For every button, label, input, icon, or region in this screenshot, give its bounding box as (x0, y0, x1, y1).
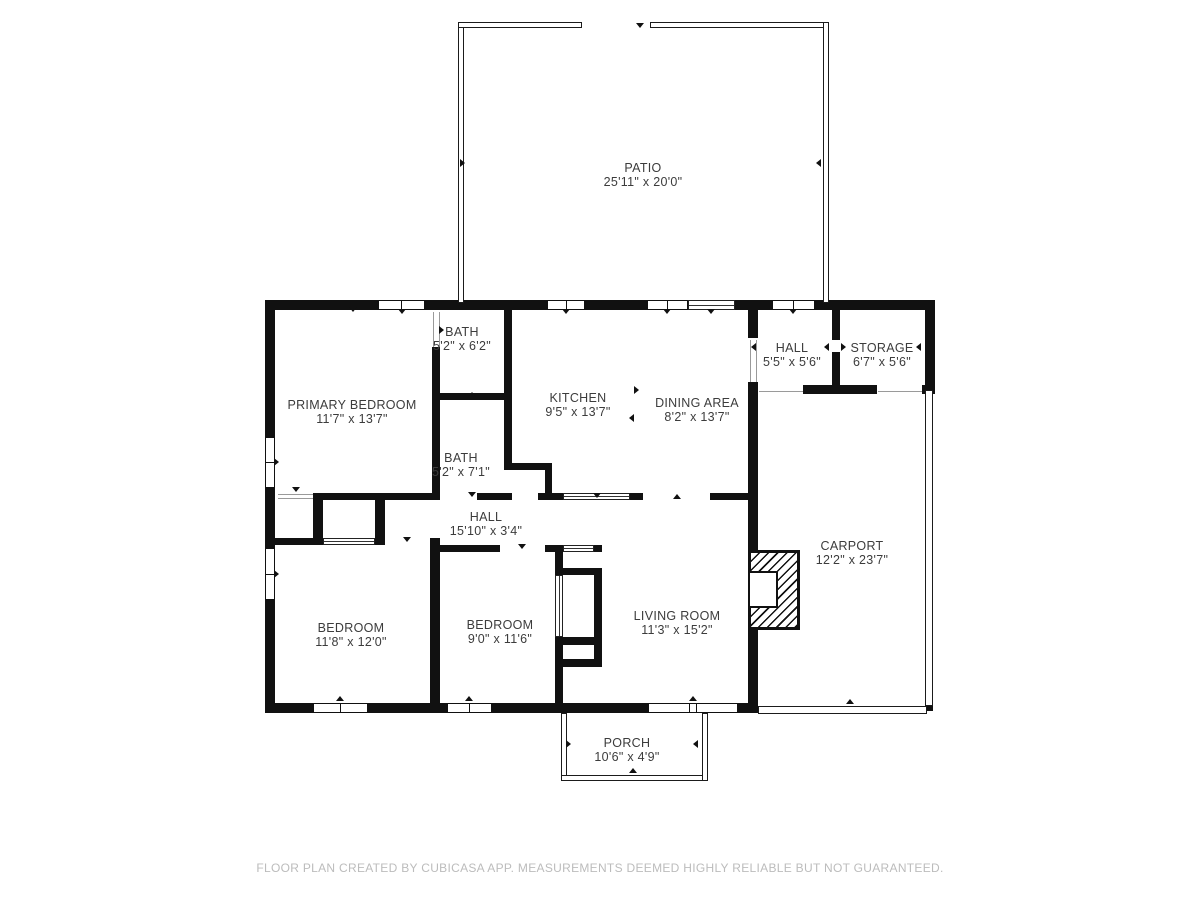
wall-segment (630, 493, 643, 500)
direction-tick (292, 487, 300, 492)
wall-segment (504, 310, 512, 463)
direction-tick (636, 23, 644, 28)
direction-tick (824, 343, 829, 351)
direction-tick (518, 544, 526, 549)
room-dimensions: 5'2" x 6'2" (433, 339, 491, 353)
wall-segment (425, 300, 547, 310)
wall-segment (368, 703, 447, 713)
wall-segment (538, 493, 563, 500)
room-name: BATH (445, 325, 479, 339)
room-label-carport: CARPORT12'2" x 23'7" (816, 539, 888, 567)
room-label-primary-bedroom: PRIMARY BEDROOM11'7" x 13'7" (287, 398, 416, 426)
wall-segment (555, 667, 563, 703)
direction-tick (403, 537, 411, 542)
direction-tick (693, 740, 698, 748)
thin-wall-segment (650, 22, 829, 28)
thin-wall-segment (561, 775, 708, 781)
window-mullion (266, 574, 274, 575)
room-name: PRIMARY BEDROOM (287, 398, 416, 412)
direction-tick (634, 386, 639, 394)
room-name: HALL (470, 510, 502, 524)
sliding-door-rail (559, 576, 560, 636)
wall-segment (265, 300, 275, 437)
room-dimensions: 6'7" x 5'6" (851, 355, 914, 369)
room-name: DINING AREA (655, 396, 739, 410)
wall-segment (594, 575, 602, 637)
room-name: KITCHEN (550, 391, 607, 405)
wall-segment (430, 545, 500, 552)
wall-segment (555, 659, 602, 667)
room-label-bath-lower: BATH5'2" x 7'1" (432, 451, 490, 479)
direction-tick (274, 458, 279, 466)
direction-tick (846, 699, 854, 704)
thin-wall-segment (702, 713, 708, 781)
room-dimensions: 11'7" x 13'7" (287, 412, 416, 426)
room-name: BEDROOM (318, 621, 385, 635)
wall-segment (265, 600, 275, 713)
room-name: BEDROOM (467, 618, 534, 632)
thin-wall-segment (458, 22, 582, 28)
opening-threshold (278, 494, 313, 495)
room-label-dining-area: DINING AREA8'2" x 13'7" (655, 396, 739, 424)
wall-segment (832, 310, 840, 340)
footer-disclaimer: FLOOR PLAN CREATED BY CUBICASA APP. MEAS… (256, 861, 943, 875)
direction-tick (562, 309, 570, 314)
room-dimensions: 9'5" x 13'7" (545, 405, 610, 419)
wall-segment (748, 382, 758, 552)
room-label-patio: PATIO25'11" x 20'0" (604, 161, 683, 189)
direction-tick (593, 493, 601, 498)
wall-segment (313, 493, 432, 500)
sliding-door (563, 545, 594, 552)
thin-wall-segment (925, 390, 933, 706)
room-dimensions: 11'8" x 12'0" (315, 635, 387, 649)
direction-tick (629, 768, 637, 773)
room-label-bedroom-middle: BEDROOM9'0" x 11'6" (467, 618, 534, 646)
direction-tick (841, 343, 846, 351)
room-name: STORAGE (851, 341, 914, 355)
wall-segment (803, 385, 877, 394)
direction-tick (673, 494, 681, 499)
sliding-door (555, 575, 563, 637)
direction-tick (707, 309, 715, 314)
room-name: CARPORT (821, 539, 884, 553)
direction-tick (689, 696, 697, 701)
room-dimensions: 9'0" x 11'6" (467, 632, 534, 646)
direction-tick (816, 159, 821, 167)
wall-segment (313, 500, 323, 545)
thin-wall-segment (823, 22, 829, 303)
room-dimensions: 10'6" x 4'9" (594, 750, 659, 764)
wall-segment (555, 568, 602, 575)
room-dimensions: 5'5" x 5'6" (763, 355, 821, 369)
floor-plan: FLOOR PLAN CREATED BY CUBICASA APP. MEAS… (0, 0, 1200, 900)
room-dimensions: 15'10" x 3'4" (450, 524, 522, 538)
window-mullion (689, 704, 690, 712)
wall-segment (545, 545, 563, 552)
window (447, 703, 492, 713)
direction-tick (663, 309, 671, 314)
wall-segment (735, 300, 772, 310)
opening-threshold (878, 391, 922, 392)
wall-segment (925, 300, 935, 390)
sliding-door (323, 538, 375, 545)
wall-segment (815, 300, 935, 310)
room-label-storage: STORAGE6'7" x 5'6" (851, 341, 914, 369)
window (313, 703, 368, 713)
sliding-door-rail (564, 548, 593, 549)
room-name: PATIO (624, 161, 661, 175)
direction-tick (398, 309, 406, 314)
wall-segment (555, 645, 563, 659)
direction-tick (460, 159, 465, 167)
sliding-door-rail (689, 305, 734, 306)
wall-segment (585, 300, 647, 310)
room-dimensions: 11'3" x 15'2" (634, 623, 721, 637)
direction-tick (274, 570, 279, 578)
room-name: BATH (444, 451, 478, 465)
window-mullion (696, 704, 697, 712)
room-dimensions: 8'2" x 13'7" (655, 410, 739, 424)
direction-tick (468, 392, 476, 397)
room-label-porch: PORCH10'6" x 4'9" (594, 736, 659, 764)
wall-segment (265, 300, 380, 310)
room-label-hall-entry: HALL5'5" x 5'6" (763, 341, 821, 369)
direction-tick (789, 309, 797, 314)
window (648, 703, 738, 713)
direction-tick (566, 740, 571, 748)
room-label-living-room: LIVING ROOM11'3" x 15'2" (634, 609, 721, 637)
wall-segment (594, 545, 602, 552)
direction-tick (336, 696, 344, 701)
window-mullion (266, 462, 274, 463)
wall-segment (265, 538, 313, 545)
opening-threshold (756, 340, 757, 382)
direction-tick (749, 399, 754, 407)
direction-tick (629, 414, 634, 422)
wall-segment (748, 628, 758, 703)
wall-segment (477, 493, 512, 500)
room-label-kitchen: KITCHEN9'5" x 13'7" (545, 391, 610, 419)
thin-wall-segment (758, 706, 927, 714)
room-name: HALL (776, 341, 808, 355)
wall-segment (375, 538, 385, 545)
opening-threshold (759, 391, 803, 392)
room-label-bedroom-left: BEDROOM11'8" x 12'0" (315, 621, 387, 649)
room-label-bath-upper: BATH5'2" x 6'2" (433, 325, 491, 353)
window-mullion (667, 301, 668, 309)
wall-segment (430, 538, 440, 703)
wall-segment (265, 703, 313, 713)
room-dimensions: 5'2" x 7'1" (432, 465, 490, 479)
wall-segment (748, 310, 758, 338)
direction-tick (468, 492, 476, 497)
direction-tick (916, 343, 921, 351)
wall-segment (710, 493, 758, 500)
wall-segment (594, 645, 602, 659)
sliding-door-rail (324, 541, 374, 542)
wall-segment (738, 703, 758, 713)
opening-threshold (278, 498, 313, 499)
room-name: PORCH (604, 736, 651, 750)
wall-segment (555, 637, 602, 645)
window-mullion (566, 301, 567, 309)
room-label-hall-corridor: HALL15'10" x 3'4" (450, 510, 522, 538)
window-mullion (469, 704, 470, 712)
window-mullion (793, 301, 794, 309)
room-dimensions: 25'11" x 20'0" (604, 175, 683, 189)
window-mullion (340, 704, 341, 712)
direction-tick (465, 696, 473, 701)
wall-segment (832, 352, 840, 385)
wall-segment (504, 463, 552, 470)
wall-segment (492, 703, 648, 713)
room-dimensions: 12'2" x 23'7" (816, 553, 888, 567)
direction-tick (349, 307, 357, 312)
window-mullion (401, 301, 402, 309)
direction-tick (751, 343, 756, 351)
room-name: LIVING ROOM (634, 609, 721, 623)
fireplace-firebox (748, 571, 778, 608)
